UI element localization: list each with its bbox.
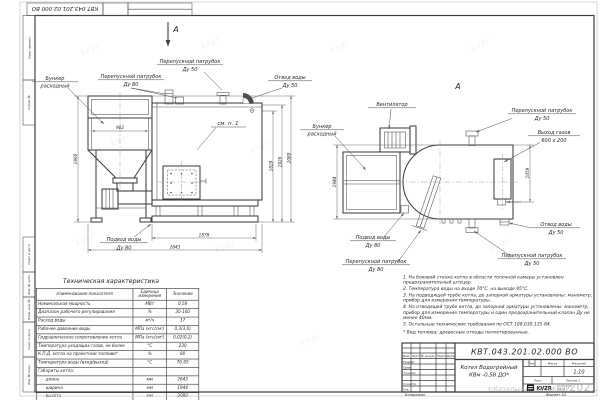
cell-unit: м³/ч [132, 317, 166, 325]
dim-gas-offset: 1059 [525, 167, 530, 178]
watermark-tile: kvzr [519, 138, 542, 155]
cell-name: - высота [36, 393, 133, 400]
margin-label: Подп. и дата [27, 244, 31, 265]
watermark-tile: kvzr [469, 36, 492, 53]
col-header-value: Значение [166, 288, 198, 300]
table-row: - ширинамм1944 [36, 384, 198, 392]
bypass80-label: Перепускной патрубок [101, 74, 162, 80]
cell-name: - длина [36, 376, 133, 384]
cell-unit: МПа (кгс/см²) [132, 325, 166, 333]
cell-unit: °С [132, 342, 166, 350]
dim-base-length: 1878 [199, 233, 210, 238]
cell-unit: % [132, 351, 166, 359]
margin-label: Справ. № [27, 95, 31, 110]
bunker-label: Бункер [46, 76, 65, 82]
bypass50-bottom-label: Перепускной патрубок [502, 253, 563, 259]
drawing-sheet: kvzr kvzr kvzr kvzr kvzr kvzr kvzr kvzr … [0, 0, 600, 400]
cell-name: Номинальная мощность [36, 300, 133, 308]
bunker-label: расходный [40, 84, 71, 90]
row-label: Н.контр. [403, 382, 416, 386]
watermark-tile: kvzr [109, 131, 132, 148]
watermark-tile: kvzr [344, 231, 367, 248]
margin-label: Инв. № подл. [27, 364, 31, 385]
water-in-label: Подвод воды [107, 237, 142, 243]
cell-name: - ширина [36, 384, 133, 392]
watermark-tile: kvzr [74, 231, 97, 248]
row-label: Разраб. [403, 360, 415, 364]
table-row: Диапазон рабочего регулирования%30-100 [36, 309, 198, 317]
water-in-label: Ду 80 [365, 243, 381, 249]
bypass80-label: Ду 80 [123, 82, 139, 88]
cell-unit: мм [132, 384, 166, 392]
note-item: 1. На боковой стенке котла в области топ… [403, 275, 595, 286]
cell-unit: мм [132, 376, 166, 384]
scale-label: Масштаб [572, 362, 586, 366]
bypass50-label: Ду 50 [182, 67, 198, 73]
spec-table-title: Техническая характеристика [63, 278, 159, 285]
bypass80-label: Перепускной патрубок [346, 259, 407, 265]
cell-value: 0,58 [166, 300, 198, 308]
rev-header: Изм. [403, 354, 410, 358]
front-view-text: А Бункер расходный Перепускной патрубок … [32, 25, 312, 252]
rev-header: Дата [446, 354, 455, 358]
mass-label: Масса [548, 362, 558, 366]
table-row: Габариты котла: [36, 367, 198, 375]
watermark-tile: kvzr [489, 236, 512, 253]
cell-unit: МВт [132, 300, 166, 308]
cell-value: 2080 [166, 393, 198, 400]
lit-label: Лит. [528, 362, 536, 366]
cell-name: Рабочее давление воды [36, 325, 133, 333]
stamp-designation: КВТ.043.201.02.000 ВО [31, 5, 98, 11]
cell-name: Температура воды (вход/выход) [36, 359, 133, 367]
watermark-tile: kvzr [329, 38, 352, 55]
watermark-tile: kvzr [299, 331, 322, 348]
dim-width: 1944 [332, 176, 337, 187]
bypass50-label: Перепускной патрубок [160, 59, 221, 65]
copyright-year: 2021 [569, 382, 598, 394]
table-row: Номинальная мощностьМВт0,58 [36, 300, 198, 308]
dim-h-outlet: 1829 [269, 160, 274, 171]
row-label: Т.контр. [403, 371, 416, 375]
watermark-tile: kvzr [249, 138, 272, 155]
water-out-label: Ду 50 [282, 83, 298, 89]
margin-label: Инв. № дубл. [27, 274, 31, 295]
water-out-label: Отвод воды [274, 75, 305, 81]
cell-unit: МПа (кгс/см²) [132, 334, 166, 342]
watermark-tile: kvzr [79, 41, 102, 58]
rev-header: № докум. [420, 354, 436, 358]
cell-value: 1944 [166, 384, 198, 392]
table-row: К.П.Д. котла на проектном топливе*%80 [36, 351, 198, 359]
bypass50-top-label: Ду 50 [534, 116, 550, 122]
table-row: - высотамм2080 [36, 393, 198, 400]
fuel-footnote: * Вид топлива: древесные отходы пеллетир… [403, 330, 595, 335]
side-view-text: А Вентилятор Бункер расходный Перепускно… [300, 82, 580, 273]
watermark-tile: kvzr [389, 131, 412, 148]
technical-notes: 1. На боковой стенке котла в области топ… [403, 275, 595, 339]
row-label: Утв. [403, 387, 409, 391]
cell-name: Расход воды [36, 317, 133, 325]
cell-value [166, 367, 198, 375]
cell-unit: % [132, 309, 166, 317]
rev-header: Лист [411, 354, 420, 358]
see-note-label: см. п. 1 [217, 121, 238, 127]
bunker-label: расходный [307, 132, 338, 138]
gas-out-label: Выход газов [538, 130, 571, 136]
cell-value: 2643 [166, 376, 198, 384]
note-item: 2. Температура воды на входе 70°С, на вы… [403, 287, 595, 292]
table-row: Рабочее давление водыМПа (кгс/см²)0,3(3,… [36, 325, 198, 333]
note-item: 5. Остальные технические требования по О… [403, 322, 595, 327]
table-row: Температура воды (вход/выход)°С70-95 [36, 359, 198, 367]
margin-label: Перв. примен. [27, 36, 31, 59]
copyright-watermark: ©КотельныйЗаводКВЗР2021 [452, 376, 598, 395]
copyright-prefix: ©КотельныйЗаводКВЗР [487, 385, 569, 393]
cell-value: 17 [166, 317, 198, 325]
row-label: Пров. [403, 365, 412, 369]
table-header-row: Наименование показателя Единица измерени… [36, 288, 198, 300]
col-header-name: Наименование показателя [36, 288, 133, 300]
dim-total-length: 2643 [170, 245, 181, 250]
gas-out-label: 600 х 200 [541, 138, 566, 144]
footer-copied: Копировал [405, 393, 426, 397]
product-name: Котел Водогрейный [460, 365, 518, 371]
dim-bunker-width: 902 [116, 125, 124, 130]
table-row: - длинамм2643 [36, 376, 198, 384]
cell-name: Температура уходящих газов, не более [36, 342, 133, 350]
view-mark-a: А [454, 82, 460, 91]
cell-name: Гидравлическое сопротивление котла [36, 334, 133, 342]
note-item: 4. На отводящей трубе котла, до запорной… [403, 305, 595, 321]
watermark-tile: kvzr [199, 34, 222, 51]
dim-h-elbow: 1929 [278, 156, 283, 167]
cell-name: Диапазон рабочего регулирования [36, 309, 133, 317]
dim-h-total: 2080 [287, 152, 292, 163]
table-row: Гидравлическое сопротивление котлаМПа (к… [36, 334, 198, 342]
front-view-linework [68, 22, 295, 253]
water-out-label: Ду 50 [548, 230, 564, 236]
dim-bunker-height: 1960 [73, 153, 78, 164]
cell-unit: °С [132, 359, 166, 367]
note-item: 3. На подводящей трубе котла, до запорно… [403, 293, 595, 304]
cell-value: 0,02(0,2) [166, 334, 198, 342]
table-row: Температура уходящих газов, не более°С23… [36, 342, 198, 350]
spec-table: Наименование показателя Единица измерени… [36, 288, 188, 392]
bypass50-bottom-label: Ду 50 [524, 261, 540, 267]
cell-name: Габариты котла: [36, 367, 133, 375]
section-mark-a: А [172, 25, 178, 34]
cell-value: 230 [166, 342, 198, 350]
cell-value: 70-95 [166, 359, 198, 367]
margin-label: Подп. и дата [27, 329, 31, 350]
doc-designation: КВТ.043.201.02.000 ВО [471, 348, 578, 357]
cell-value: 80 [166, 351, 198, 359]
cell-name: К.П.Д. котла на проектном топливе* [36, 351, 133, 359]
watermark-tile: kvzr [214, 238, 237, 255]
cell-value: 0,3(3,0) [166, 325, 198, 333]
water-in-label: Ду 80 [116, 246, 132, 252]
table-row: Расход водым³/ч17 [36, 317, 198, 325]
water-out-label: Отвод воды [540, 222, 571, 228]
bunker-label: Бункер [313, 124, 332, 130]
cell-unit [132, 367, 166, 375]
scale-value: 1:10 [573, 370, 584, 376]
cell-unit: мм [132, 393, 166, 400]
col-header-unit: Единица измерения [132, 288, 166, 300]
margin-label: Взам. инв. № [27, 299, 31, 319]
cell-value: 30-100 [166, 309, 198, 317]
fan-label: Вентилятор [376, 102, 407, 108]
rev-header: Подп. [436, 354, 445, 358]
bypass80-label: Ду 80 [368, 267, 384, 273]
bypass50-top-label: Перепускной патрубок [512, 108, 573, 114]
